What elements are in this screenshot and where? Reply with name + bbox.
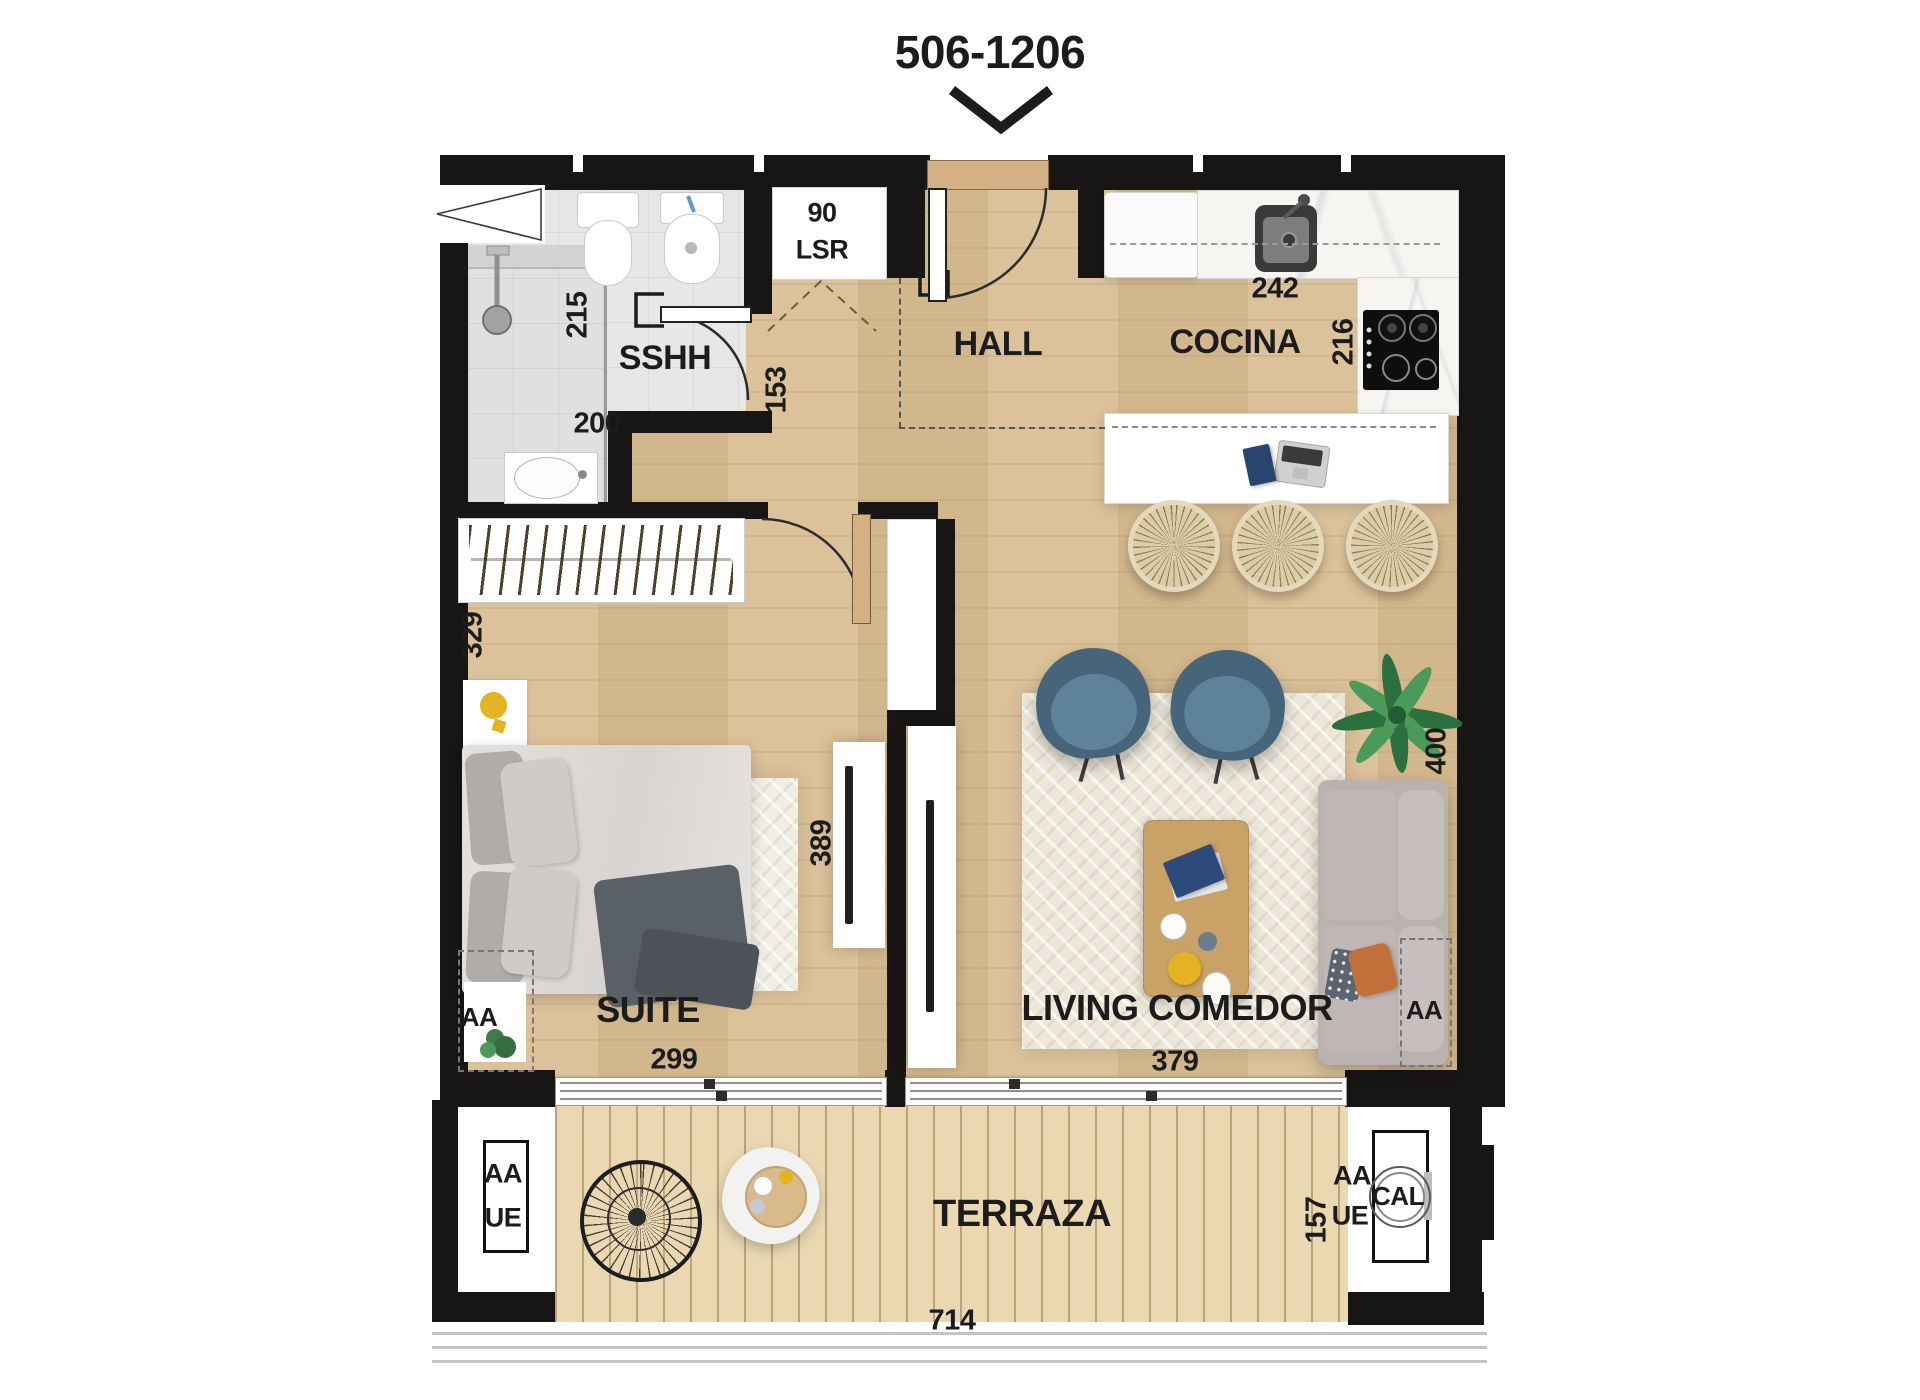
closet-hangers [469,525,733,595]
bar-stool [1128,500,1220,592]
unit-title: 506-1206 [895,29,1085,75]
wall-bottom-right [1345,1070,1505,1107]
bath-sink-faucet [578,470,587,479]
entry-door-leaf [928,188,947,302]
dim-kitchen-counter: 242 [1252,275,1299,304]
island-dashline [1112,426,1436,428]
wall-tv-divider [887,726,906,1077]
wall-mid-vertical [936,519,955,723]
armchair-seat [1047,670,1140,755]
terrace-tray [745,1166,807,1228]
dim-bedroom-length: 389 [808,820,837,867]
wall-joint [1193,155,1203,172]
tray-cup [753,1176,773,1196]
armchair-seat [1181,672,1273,755]
suite-tv-console [833,742,885,948]
dim-bath-length: 200 [574,410,621,439]
hall-boundary-v [899,278,901,428]
wall-pier-lsr [885,190,925,278]
laptop-keyboard [1281,445,1323,466]
entry-threshold [927,160,1049,190]
closet-label: LSR [796,237,849,264]
terrace-railing [432,1360,1487,1363]
wall-bath-right [744,190,772,314]
wall-bath-step [608,433,632,504]
kitchen-sink-drain [1281,232,1297,248]
dim-bedroom-width: 299 [651,1046,698,1075]
bidet-drain [685,242,697,254]
laptop-trackpad [1292,467,1308,480]
wall-bath-bottom [608,411,772,433]
room-label-bathroom: SSHH [619,341,711,375]
fridge [1104,192,1199,278]
window-handle [1146,1091,1157,1101]
wall-right [1457,190,1505,1075]
suite-closet [458,518,745,603]
counter-dashline [1110,243,1440,245]
mid-niche [887,519,938,712]
terrace-ac-box-left [483,1140,529,1253]
dim-terrace-depth: 157 [1303,1197,1332,1244]
wall-joint [573,155,583,172]
dim-living-width: 379 [1152,1048,1199,1077]
wall-terrace-right [1450,1107,1482,1292]
tray-cup-yellow [779,1170,793,1184]
room-label-bedroom: SUITE [596,992,700,1028]
living-window [905,1077,1347,1106]
dim-hall-width: 153 [763,367,792,414]
wall-window-pier [885,1070,905,1107]
wall-terrace-left [432,1100,458,1296]
room-label-hall: HALL [954,327,1043,361]
shaft-box [433,185,545,243]
wall-joint [754,155,764,172]
living-tv [926,800,934,1012]
window-handle [704,1079,715,1089]
table-cup [1160,913,1187,940]
equip-water-heater: CAL [1372,1183,1424,1209]
cooktop [1363,310,1439,390]
wall-mid-connector [887,710,955,726]
equip-terrace-left-unit: UE [485,1205,522,1232]
dim-bedroom-closet: 329 [459,612,488,659]
suite-tv [845,766,853,924]
toilet-bowl [584,220,632,286]
window-handle [716,1091,727,1101]
kitchen-counter-top [1197,190,1459,279]
suite-door-leaf [852,514,871,624]
equip-bedroom-ac: AA [461,1004,498,1030]
table-bowl-yellow [1168,952,1201,985]
equip-terrace-right-ac: AA [1333,1163,1371,1190]
wall-pier-fridge [1078,190,1104,278]
dim-bath-width: 215 [564,292,593,339]
mat-decor-circle [480,692,507,719]
floor-plan: 506-1206 [0,0,1920,1400]
closet-width-label: 90 [807,200,836,227]
dim-kitchen-depth: 216 [1330,319,1359,366]
sofa-seat-cushion [1324,790,1396,920]
wall-terrace-bottom-right [1348,1292,1484,1325]
equip-living-ac: AA [1406,997,1443,1023]
dim-terrace-width: 714 [929,1307,976,1336]
wall-terrace-right-bump [1482,1145,1494,1240]
bar-stool [1346,500,1438,592]
room-label-terrace: TERRAZA [933,1195,1111,1233]
wall-suite-hall-a [440,502,768,519]
tray-cup [750,1199,765,1214]
bath-door-leaf [660,306,752,323]
room-label-kitchen: COCINA [1169,325,1300,359]
bar-stool [1232,500,1324,592]
sofa-back-cushion [1398,790,1444,920]
dim-living-length: 400 [1423,728,1452,775]
laptop [1273,440,1330,489]
wall-terrace-bottom-left [432,1292,555,1322]
wicker-chair-hub [628,1208,646,1226]
equip-terrace-left-ac: AA [484,1161,522,1188]
room-label-living: LIVING COMEDOR [1021,990,1332,1026]
suite-window [555,1077,887,1106]
window-handle [1009,1079,1020,1089]
table-cup [1198,932,1217,951]
wall-top-right [1048,155,1505,190]
terrace-railing [432,1346,1487,1349]
bed-pillow [499,756,579,869]
equip-terrace-right-unit: UE [1332,1203,1369,1230]
wall-joint [1341,155,1351,172]
hall-boundary-h [899,427,1105,429]
bath-sink-basin [514,457,580,499]
